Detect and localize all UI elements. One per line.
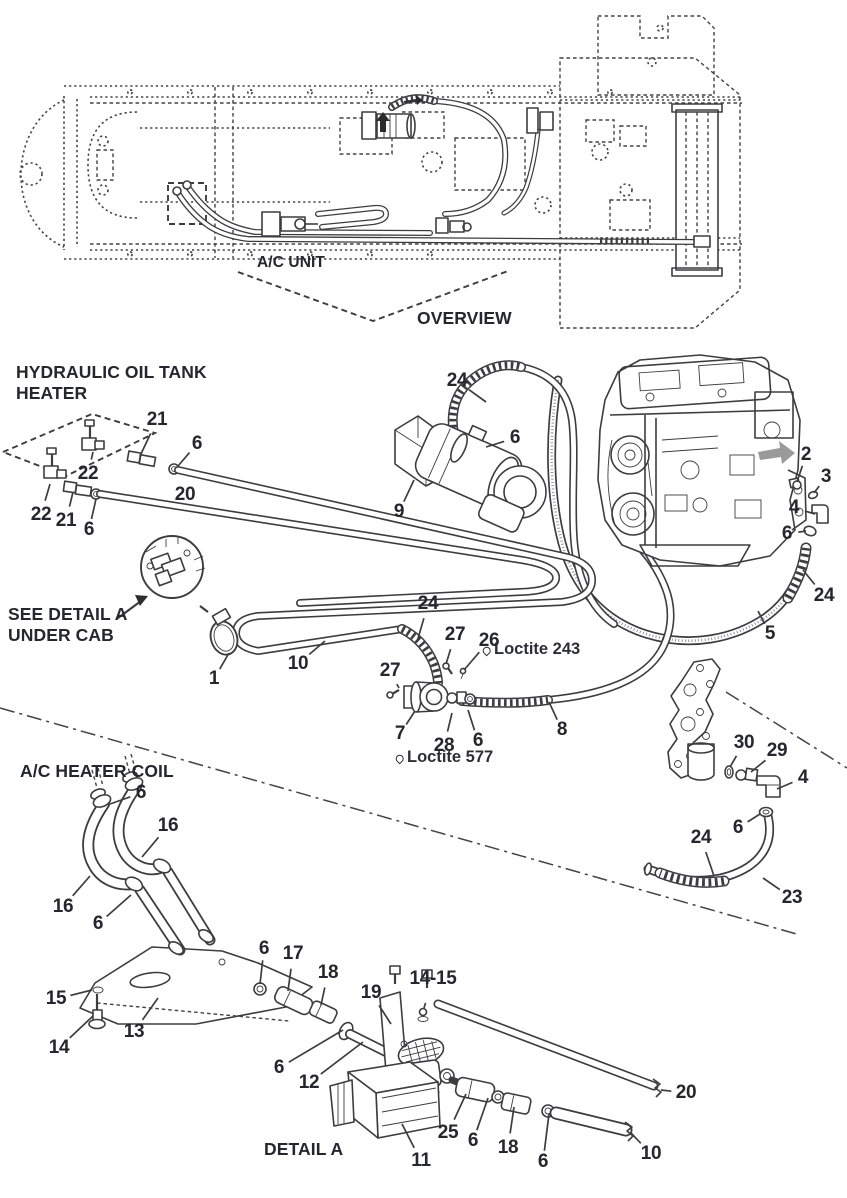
detail-a-reference-circle bbox=[118, 536, 205, 618]
leader-line-14-15 bbox=[424, 1003, 426, 1008]
leader-line-12 bbox=[321, 1042, 363, 1074]
coil-mounting-plate bbox=[80, 947, 312, 1029]
ac-unit-box bbox=[330, 1062, 440, 1138]
callout-18: 18 bbox=[498, 1137, 519, 1159]
section-title-see-detail: SEE DETAIL A UNDER CAB bbox=[8, 604, 128, 646]
loctite-drop-icon bbox=[394, 753, 405, 764]
leader-line-21 bbox=[70, 492, 74, 507]
leader-line-26 bbox=[464, 652, 479, 670]
callout-13: 13 bbox=[124, 1021, 145, 1043]
caption-detail-a: DETAIL A bbox=[264, 1139, 343, 1160]
callout-6: 6 bbox=[473, 730, 483, 752]
parts-diagram-page: HYDRAULIC OIL TANK HEATER SEE DETAIL A U… bbox=[0, 0, 847, 1198]
callout-3: 3 bbox=[821, 466, 831, 488]
valve-outlet-fittings bbox=[452, 1076, 633, 1141]
leader-line-16 bbox=[142, 837, 159, 857]
title-line: UNDER CAB bbox=[8, 625, 128, 646]
callout-6: 6 bbox=[274, 1057, 284, 1079]
callout-29: 29 bbox=[767, 740, 788, 762]
leader-line-6 bbox=[92, 499, 97, 519]
leader-line-22 bbox=[45, 484, 50, 501]
callout-6: 6 bbox=[733, 817, 743, 839]
callout-6: 6 bbox=[136, 782, 146, 804]
callout-21: 21 bbox=[147, 409, 168, 431]
overview-machine-outline bbox=[20, 16, 742, 328]
leader-line-22 bbox=[91, 452, 93, 460]
callout-2: 2 bbox=[801, 444, 811, 466]
leader-line-14 bbox=[70, 1016, 93, 1038]
callout-21: 21 bbox=[56, 510, 77, 532]
callout-6: 6 bbox=[538, 1151, 548, 1173]
label-ac-unit: A/C UNIT bbox=[257, 252, 325, 273]
leader-line-6 bbox=[798, 531, 806, 532]
heater-pump-unit bbox=[395, 416, 546, 534]
leader-line-6 bbox=[748, 814, 760, 822]
callout-24: 24 bbox=[814, 585, 835, 607]
leader-line-24 bbox=[803, 570, 815, 585]
thermostat-housing bbox=[668, 659, 720, 780]
callout-23: 23 bbox=[782, 887, 803, 909]
callout-12: 12 bbox=[299, 1072, 320, 1094]
leader-line-8 bbox=[549, 702, 557, 720]
callout-14-15: 14-15 bbox=[409, 968, 456, 990]
callout-10: 10 bbox=[641, 1143, 662, 1165]
leader-line-10 bbox=[631, 1133, 641, 1143]
callout-16: 16 bbox=[158, 815, 179, 837]
callout-30: 30 bbox=[734, 732, 755, 754]
callout-4: 4 bbox=[798, 767, 808, 789]
leader-line-27 bbox=[397, 684, 399, 688]
leader-line-6 bbox=[477, 1098, 488, 1130]
leader-line-25 bbox=[454, 1094, 466, 1120]
title-line: HEATER bbox=[16, 383, 207, 404]
callout-1: 1 bbox=[209, 668, 219, 690]
callout-10: 10 bbox=[288, 653, 309, 675]
callout-5: 5 bbox=[765, 623, 775, 645]
leader-line-6 bbox=[107, 895, 131, 917]
leader-line-20 bbox=[661, 1090, 671, 1091]
callout-8: 8 bbox=[557, 719, 567, 741]
title-line: HYDRAULIC OIL TANK bbox=[16, 362, 207, 383]
callout-15: 15 bbox=[46, 988, 67, 1010]
callout-6: 6 bbox=[782, 523, 792, 545]
loctite-text: Loctite 243 bbox=[494, 640, 580, 659]
caption-overview: OVERVIEW bbox=[417, 308, 512, 329]
title-line: SEE DETAIL A bbox=[8, 604, 128, 625]
callout-22: 22 bbox=[31, 504, 52, 526]
leader-line-6 bbox=[289, 1030, 343, 1062]
leader-line-7 bbox=[406, 711, 415, 725]
callout-25: 25 bbox=[438, 1122, 459, 1144]
callout-6: 6 bbox=[468, 1130, 478, 1152]
section-title-ac-heater-coil: A/C HEATER COIL bbox=[20, 761, 174, 782]
callout-27: 27 bbox=[445, 624, 466, 646]
callout-24: 24 bbox=[418, 593, 439, 615]
callout-26: 26 bbox=[479, 630, 500, 652]
engine bbox=[598, 355, 806, 566]
leader-line-28 bbox=[448, 713, 453, 732]
leader-line-18 bbox=[321, 988, 325, 1006]
leader-line-6 bbox=[544, 1114, 549, 1151]
callout-11: 11 bbox=[411, 1150, 431, 1172]
callout-9: 9 bbox=[394, 501, 404, 523]
callout-28: 28 bbox=[434, 735, 455, 757]
callout-6: 6 bbox=[259, 938, 269, 960]
callout-6: 6 bbox=[510, 427, 520, 449]
leader-line-9 bbox=[404, 480, 414, 502]
overview-engine-connector bbox=[527, 108, 553, 133]
leader-line-6 bbox=[468, 710, 475, 730]
leader-line-6 bbox=[178, 453, 190, 466]
callout-20: 20 bbox=[175, 484, 196, 506]
callout-24: 24 bbox=[447, 370, 468, 392]
callout-7: 7 bbox=[395, 723, 405, 745]
tank-heater-fittings bbox=[44, 420, 179, 499]
callout-22: 22 bbox=[78, 463, 99, 485]
hose-clamp-1 bbox=[200, 606, 242, 658]
callout-17: 17 bbox=[283, 943, 304, 965]
section-title-hydraulic-heater: HYDRAULIC OIL TANK HEATER bbox=[16, 362, 207, 404]
leader-line-24 bbox=[706, 852, 714, 876]
callout-6: 6 bbox=[192, 433, 202, 455]
callout-19: 19 bbox=[361, 982, 382, 1004]
callout-6: 6 bbox=[93, 913, 103, 935]
radiator bbox=[672, 104, 722, 276]
callout-6: 6 bbox=[84, 519, 94, 541]
callout-16: 16 bbox=[53, 896, 74, 918]
leader-line-23 bbox=[763, 878, 780, 890]
callout-18: 18 bbox=[318, 962, 339, 984]
callout-20: 20 bbox=[676, 1082, 697, 1104]
callout-4: 4 bbox=[789, 497, 799, 519]
leader-line-27 bbox=[446, 649, 451, 664]
leader-line-30 bbox=[730, 756, 737, 767]
callout-24: 24 bbox=[691, 827, 712, 849]
overview-ac-plumbing bbox=[173, 95, 710, 321]
callout-27: 27 bbox=[380, 660, 401, 682]
callout-14: 14 bbox=[49, 1037, 70, 1059]
leader-line-24 bbox=[469, 390, 486, 402]
leader-line-16 bbox=[73, 876, 90, 896]
